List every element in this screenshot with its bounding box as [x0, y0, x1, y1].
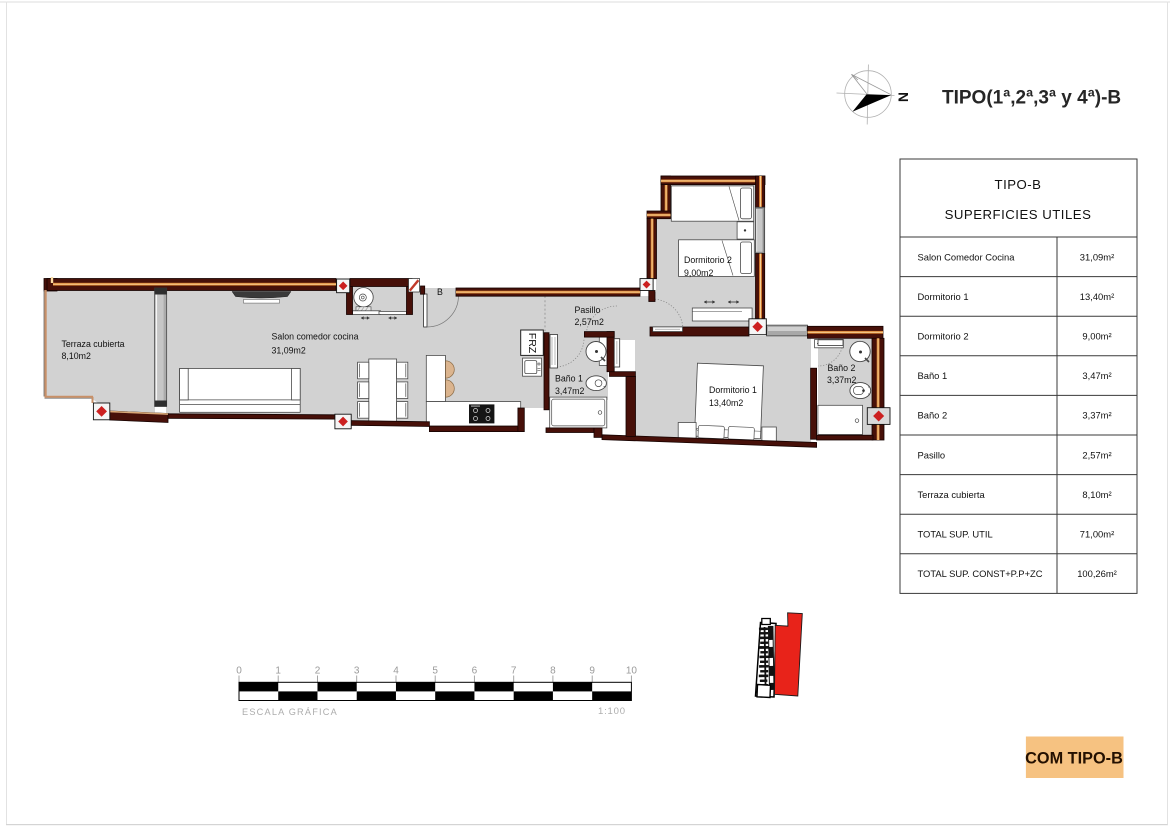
svg-text:13,40m2: 13,40m2	[709, 398, 743, 408]
svg-text:31,09m²: 31,09m²	[1080, 251, 1114, 262]
svg-text:TIPO-B: TIPO-B	[995, 177, 1042, 192]
svg-text:Baño 2: Baño 2	[828, 363, 856, 373]
svg-text:Baño 2: Baño 2	[918, 410, 948, 421]
svg-text:3,47m2: 3,47m2	[555, 386, 584, 396]
svg-text:13,40m²: 13,40m²	[1080, 291, 1114, 302]
svg-text:2: 2	[315, 666, 321, 677]
svg-text:SUPERFICIES UTILES: SUPERFICIES UTILES	[945, 207, 1092, 222]
svg-text:TIPO(1ª,2ª,3ª y 4ª)-B: TIPO(1ª,2ª,3ª y 4ª)-B	[942, 88, 1121, 109]
svg-text:TOTAL SUP. UTIL: TOTAL SUP. UTIL	[918, 529, 993, 540]
svg-text:2,57m2: 2,57m2	[575, 317, 604, 327]
svg-text:7: 7	[511, 666, 517, 677]
svg-text:3,37m²: 3,37m²	[1082, 410, 1111, 421]
svg-text:Baño 1: Baño 1	[918, 370, 948, 381]
svg-text:8,10m2: 8,10m2	[62, 351, 91, 361]
svg-text:71,00m²: 71,00m²	[1080, 529, 1114, 540]
svg-text:9,00m2: 9,00m2	[684, 268, 713, 278]
svg-text:3: 3	[354, 666, 360, 677]
svg-text:N: N	[895, 92, 911, 102]
svg-text:Dormitorio 1: Dormitorio 1	[709, 385, 757, 395]
svg-text:3,47m²: 3,47m²	[1082, 370, 1111, 381]
svg-text:TOTAL SUP. CONST+P.P+ZC: TOTAL SUP. CONST+P.P+ZC	[918, 568, 1043, 579]
svg-text:10: 10	[626, 666, 638, 677]
svg-text:0: 0	[236, 666, 242, 677]
svg-text:FRZ: FRZ	[526, 333, 538, 354]
svg-text:9,00m²: 9,00m²	[1082, 331, 1111, 342]
svg-text:Salon comedor cocina: Salon comedor cocina	[272, 332, 359, 342]
svg-text:Pasillo: Pasillo	[575, 305, 601, 315]
svg-text:3,37m2: 3,37m2	[827, 375, 856, 385]
svg-text:COM TIPO-B: COM TIPO-B	[1025, 750, 1123, 768]
svg-text:Baño 1: Baño 1	[555, 374, 583, 384]
svg-text:1:100: 1:100	[598, 706, 626, 717]
svg-text:Dormitorio 1: Dormitorio 1	[918, 291, 969, 302]
svg-text:4: 4	[393, 666, 399, 677]
svg-text:Terraza cubierta: Terraza cubierta	[62, 339, 125, 349]
svg-text:Pasillo: Pasillo	[918, 449, 946, 460]
svg-text:Salon Comedor Cocina: Salon Comedor Cocina	[918, 251, 1016, 262]
svg-text:1: 1	[275, 666, 281, 677]
svg-text:B: B	[437, 287, 443, 297]
svg-text:Dormitorio 2: Dormitorio 2	[684, 255, 732, 265]
svg-text:ESCALA GRÁFICA: ESCALA GRÁFICA	[242, 707, 338, 717]
svg-text:100,26m²: 100,26m²	[1077, 568, 1117, 579]
svg-text:Terraza cubierta: Terraza cubierta	[918, 489, 986, 500]
svg-text:2,57m²: 2,57m²	[1082, 449, 1111, 460]
svg-text:5: 5	[432, 666, 438, 677]
svg-text:9: 9	[589, 666, 595, 677]
svg-text:8,10m²: 8,10m²	[1082, 489, 1111, 500]
svg-text:31,09m2: 31,09m2	[272, 346, 306, 356]
svg-text:Dormitorio 2: Dormitorio 2	[918, 331, 969, 342]
svg-text:8: 8	[550, 666, 556, 677]
svg-text:6: 6	[472, 666, 478, 677]
